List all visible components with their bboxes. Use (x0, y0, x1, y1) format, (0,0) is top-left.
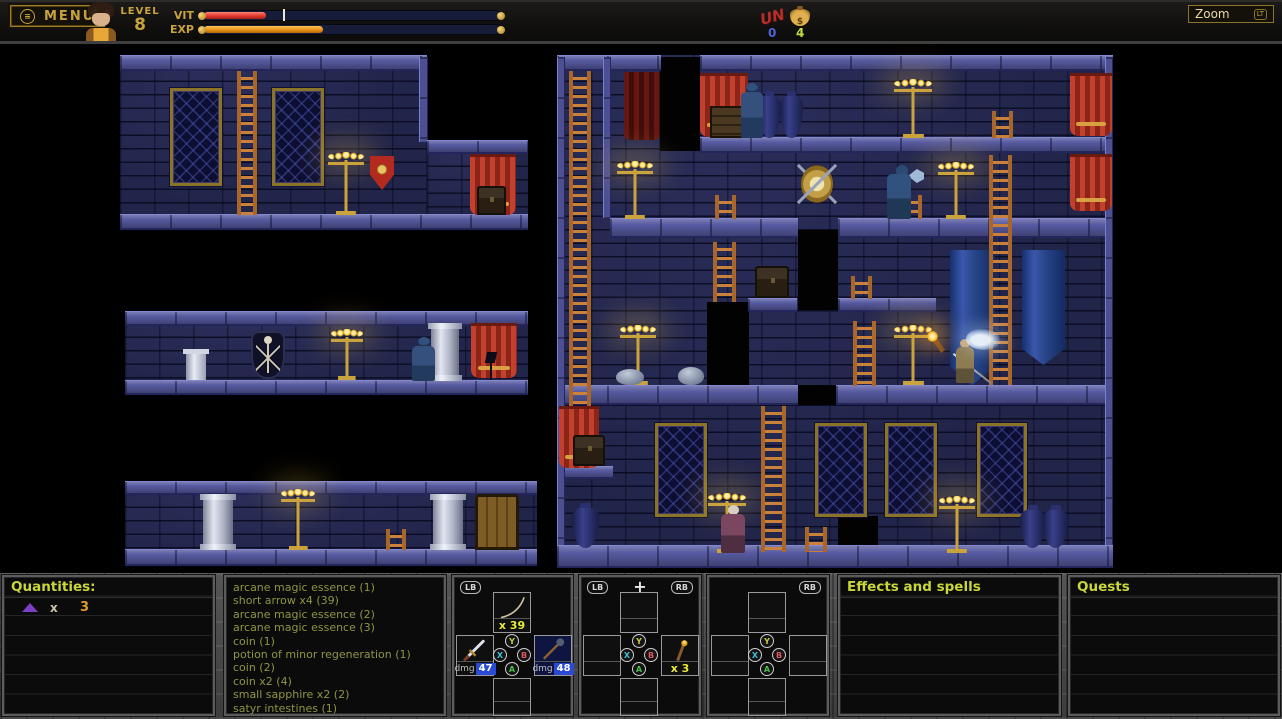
candelabra (939, 496, 975, 553)
column (203, 494, 233, 550)
enemy-knight (736, 83, 768, 138)
candelabra (938, 162, 974, 219)
candelabra (617, 161, 653, 219)
dmg-label: dmg (532, 664, 552, 674)
a-button-icon: A (505, 662, 519, 676)
ladder (237, 71, 257, 215)
gold-count: 4 (796, 26, 804, 40)
window (977, 423, 1027, 517)
platform-beam (836, 385, 1113, 405)
magic-cloud (966, 328, 1002, 350)
item-slot-empty[interactable] (711, 635, 749, 676)
x-button-icon: X (620, 648, 634, 662)
a-button-icon: A (632, 662, 646, 676)
window (272, 88, 324, 186)
candelabra (281, 489, 315, 550)
b-button-icon: B (772, 648, 786, 662)
loot-item: satyr intestines (1) (233, 702, 437, 715)
banner (1022, 250, 1065, 365)
quantity-count: 3 (80, 600, 89, 615)
loot-log-panel: arcane magic essence (1) short arrow x4 … (224, 575, 446, 716)
torch-icon (665, 637, 696, 663)
level-display: LEVEL 8 (116, 6, 164, 34)
candelabra (328, 152, 364, 215)
b-button-icon: B (644, 648, 658, 662)
step-ladder (805, 527, 827, 552)
torch-count: x 3 (662, 661, 698, 675)
gamepad-panel-consumables: LB + RB x 3 Y X B A (579, 575, 701, 716)
platform-beam (120, 214, 528, 230)
vit-label: VIT (166, 9, 194, 22)
quantities-panel: Quantities: x 3 (2, 575, 215, 716)
vit-bar (202, 10, 501, 21)
loot-list: arcane magic essence (1) short arrow x4 … (226, 577, 444, 719)
platform-beam (700, 137, 1113, 153)
step-ladder (386, 529, 406, 550)
dmg-value: 48 (554, 663, 574, 675)
window (815, 423, 867, 517)
vit-bar-marker (283, 9, 285, 21)
item-slot-empty[interactable] (583, 635, 621, 676)
experience-row: EXP (166, 23, 501, 36)
red-curtain (1070, 154, 1112, 211)
platform-beam (125, 481, 537, 495)
platform-beam (125, 380, 528, 395)
enemy-axe-knight (880, 165, 920, 219)
item-slot-torch[interactable]: x 3 (661, 635, 699, 676)
platform-beam (125, 311, 528, 326)
face-buttons: Y X B A (493, 634, 531, 676)
item-slot-empty[interactable] (620, 678, 658, 716)
item-slot-empty[interactable] (493, 678, 531, 716)
quests-header: Quests (1070, 577, 1278, 598)
item-slot-empty[interactable] (748, 592, 786, 633)
loot-item: coin x2 (4) (233, 675, 437, 688)
platform-beam (748, 298, 797, 312)
loot-item: short arrow x4 (39) (233, 594, 437, 607)
a-button-icon: A (760, 662, 774, 676)
loot-item: arcane magic essence (1) (233, 581, 437, 594)
item-slot-sword[interactable]: dmg47 (456, 635, 494, 676)
item-slot-empty[interactable] (620, 592, 658, 633)
platform-beam (557, 385, 798, 405)
step-ladder (851, 276, 872, 299)
money-bag-icon: $ (790, 9, 810, 26)
wall-beam (603, 57, 611, 218)
wall-beam (419, 57, 428, 142)
currency-display: UN 0 $ 4 (756, 6, 826, 40)
plus-icon: + (633, 577, 646, 596)
mace-icon (538, 637, 569, 663)
sword-icon (460, 637, 491, 663)
zoom-button[interactable]: Zoom LT (1188, 5, 1274, 23)
y-button-icon: Y (760, 634, 774, 648)
dmg-label: dmg (454, 664, 474, 674)
chest (755, 266, 789, 298)
lb-badge: LB (587, 581, 608, 594)
platform-beam (610, 218, 798, 238)
wall-beam (557, 57, 565, 545)
zoom-label: Zoom (1195, 7, 1230, 21)
arrow-count: x 39 (494, 618, 530, 632)
platform-beam (700, 55, 1113, 71)
player-avatar (86, 2, 116, 41)
pedestal (186, 349, 206, 380)
enemy-warrior (714, 505, 752, 553)
platform-beam (120, 55, 427, 71)
ladder (761, 406, 786, 552)
loot-item: arcane magic essence (2) (233, 608, 437, 621)
window (885, 423, 937, 517)
candelabra (894, 79, 932, 138)
doorway-opening (707, 302, 749, 398)
round-shield-decor (797, 161, 837, 207)
b-button-icon: B (517, 648, 531, 662)
lt-button-icon: LT (1254, 9, 1267, 20)
un-count: 0 (768, 26, 776, 40)
column (433, 494, 463, 550)
ladder (713, 242, 736, 302)
item-slot-empty[interactable] (748, 678, 786, 716)
effects-panel: Effects and spells (838, 575, 1061, 716)
purple-gem-icon (22, 603, 38, 612)
platform-beam (838, 218, 1113, 238)
rb-badge: RB (671, 581, 693, 594)
skeleton-plaque (251, 331, 285, 379)
quests-panel: Quests (1068, 575, 1280, 716)
rock (678, 367, 704, 385)
window (655, 423, 707, 517)
gamepad-panel-weapons: LB x 39 dmg47 dmg48 Y X B A (452, 575, 573, 716)
platform-beam (557, 545, 1113, 568)
quantities-header: Quantities: (4, 577, 213, 598)
loot-item: small sapphire x2 (2) (233, 688, 437, 701)
step-ladder (992, 111, 1013, 138)
quantity-row: x 3 (4, 599, 213, 617)
hud-bar: ≡ MENU LEVEL 8 VIT EXP UN 0 $ 4 (0, 0, 1282, 44)
gamepad-panel-spells: RB Y X B A (707, 575, 829, 716)
lb-badge: LB (460, 581, 481, 594)
exp-label: EXP (166, 23, 194, 36)
platform-beam (125, 549, 537, 566)
enemy-knight (407, 337, 440, 381)
platform-beam (838, 298, 936, 312)
candelabra (331, 329, 363, 380)
platform-beam (427, 140, 528, 154)
bow-icon (497, 594, 528, 620)
level-value: 8 (116, 17, 164, 34)
exp-bar (202, 24, 501, 35)
loot-item: coin (1) (233, 635, 437, 648)
rb-badge: RB (799, 581, 821, 594)
x-button-icon: X (748, 648, 762, 662)
loot-item: arcane magic essence (3) (233, 621, 437, 634)
face-buttons: Y X B A (748, 634, 786, 676)
step-ladder (715, 195, 736, 219)
wooden-door (475, 494, 519, 550)
floor-gap (798, 385, 836, 405)
rock (616, 369, 644, 385)
doorway-opening (798, 230, 838, 310)
y-button-icon: Y (632, 634, 646, 648)
loot-item: potion of minor regeneration (1) (233, 648, 437, 661)
vit-bar-fill (204, 12, 266, 19)
doorway-opening (660, 57, 700, 151)
vitality-row: VIT (166, 9, 501, 22)
effects-header: Effects and spells (840, 577, 1059, 598)
exp-bar-fill (204, 26, 323, 33)
loot-item: coin (2) (233, 661, 437, 674)
game-window: ≡ MENU LEVEL 8 VIT EXP UN 0 $ 4 (0, 0, 1282, 719)
x-button-icon: X (493, 648, 507, 662)
music-stand (483, 352, 499, 380)
ladder (853, 321, 876, 386)
item-slot-bow[interactable]: x 39 (493, 592, 531, 633)
item-slot-mace[interactable]: dmg48 (534, 635, 572, 676)
y-button-icon: Y (505, 634, 519, 648)
face-buttons: Y X B A (620, 634, 658, 676)
menu-icon: ≡ (20, 9, 35, 24)
window (170, 88, 222, 186)
times-label: x (50, 601, 58, 615)
dark-curtain (624, 72, 660, 140)
bottom-hud: Quantities: x 3 arcane magic essence (1)… (0, 573, 1282, 719)
item-slot-empty[interactable] (789, 635, 827, 676)
chest (477, 186, 506, 215)
red-curtain (1070, 73, 1112, 136)
chest (573, 435, 605, 466)
